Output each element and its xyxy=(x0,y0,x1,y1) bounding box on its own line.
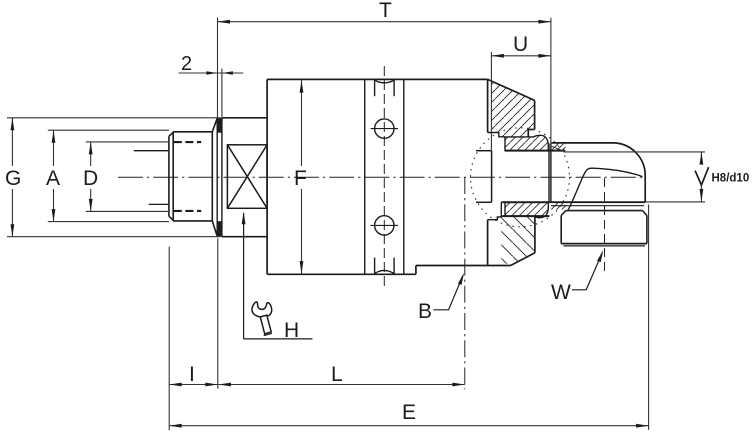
svg-text:U: U xyxy=(513,33,528,56)
svg-text:F: F xyxy=(294,167,307,190)
svg-text:I: I xyxy=(189,363,195,386)
svg-text:A: A xyxy=(46,167,60,190)
svg-text:H8/d10: H8/d10 xyxy=(712,173,750,185)
svg-text:D: D xyxy=(83,167,98,190)
svg-text:G: G xyxy=(5,167,21,190)
svg-text:E: E xyxy=(402,401,416,424)
svg-text:T: T xyxy=(379,0,392,22)
svg-text:H: H xyxy=(284,319,299,342)
svg-text:2: 2 xyxy=(181,53,192,75)
svg-text:W: W xyxy=(551,281,571,304)
svg-text:B: B xyxy=(418,300,432,323)
svg-text:L: L xyxy=(331,363,343,386)
